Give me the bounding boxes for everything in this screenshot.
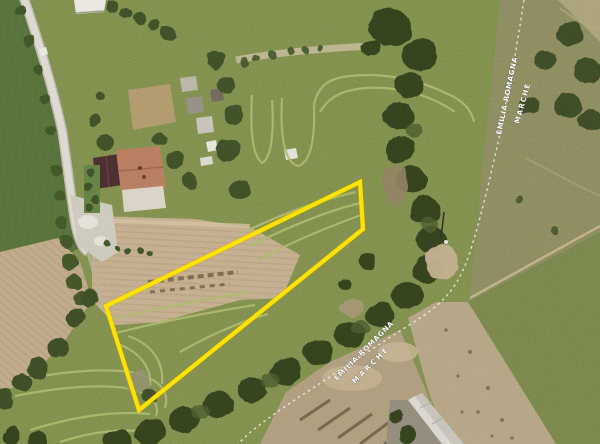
bare-bank [427,243,457,281]
lone-bush-2 [551,226,559,234]
lone-bush-1 [516,196,524,204]
house-terrace [122,186,166,212]
driveway-light-patch [78,215,98,229]
bare-patch-1 [382,165,408,205]
chimney-2 [142,175,146,179]
shed-2 [186,96,204,114]
satellite-map-svg: EMILIA-ROMAGNA MARCHE EMILIA-ROMAGNA MAR… [0,0,600,444]
chimney-1 [138,166,142,170]
shed-3 [196,116,214,134]
dirt-patch-yard [128,84,176,130]
satellite-map-image: EMILIA-ROMAGNA MARCHE EMILIA-ROMAGNA MAR… [0,0,600,444]
utility-pole-top [444,240,448,244]
bare-patch-2 [340,299,364,317]
shed-1 [180,76,198,92]
